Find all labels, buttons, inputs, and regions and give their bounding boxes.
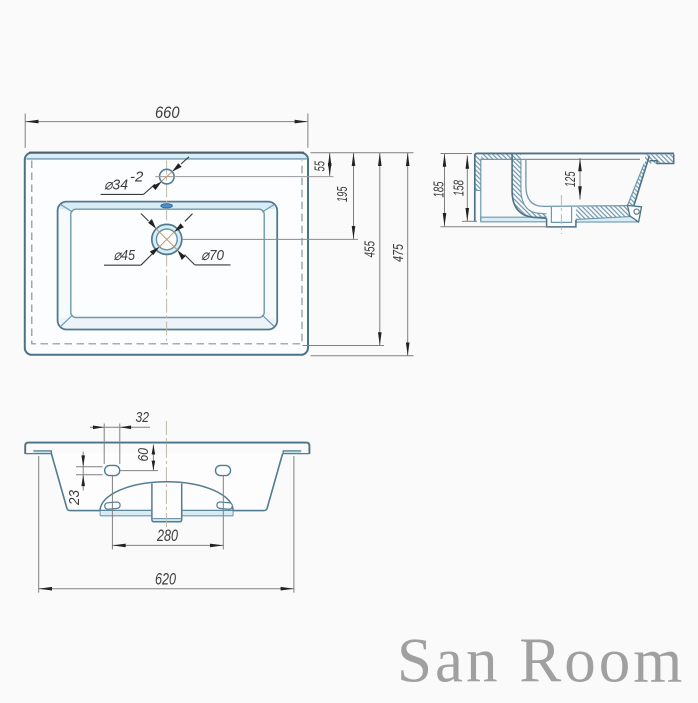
svg-text:⌀70: ⌀70 bbox=[201, 247, 225, 264]
svg-text:660: 660 bbox=[155, 103, 180, 122]
svg-text:-2: -2 bbox=[130, 169, 144, 186]
svg-text:60: 60 bbox=[135, 447, 152, 461]
svg-text:55: 55 bbox=[312, 161, 329, 172]
svg-text:23: 23 bbox=[66, 489, 83, 505]
svg-text:475: 475 bbox=[390, 244, 407, 262]
svg-text:⌀45: ⌀45 bbox=[114, 247, 136, 264]
svg-text:158: 158 bbox=[451, 180, 468, 196]
svg-text:195: 195 bbox=[334, 186, 351, 202]
svg-text:185: 185 bbox=[431, 181, 448, 197]
svg-text:San Room: San Room bbox=[397, 626, 685, 696]
svg-text:125: 125 bbox=[562, 171, 579, 187]
svg-text:280: 280 bbox=[156, 526, 178, 545]
svg-text:32: 32 bbox=[136, 409, 150, 426]
svg-text:⌀34: ⌀34 bbox=[104, 177, 128, 194]
svg-text:620: 620 bbox=[155, 570, 176, 589]
svg-text:455: 455 bbox=[362, 241, 379, 258]
